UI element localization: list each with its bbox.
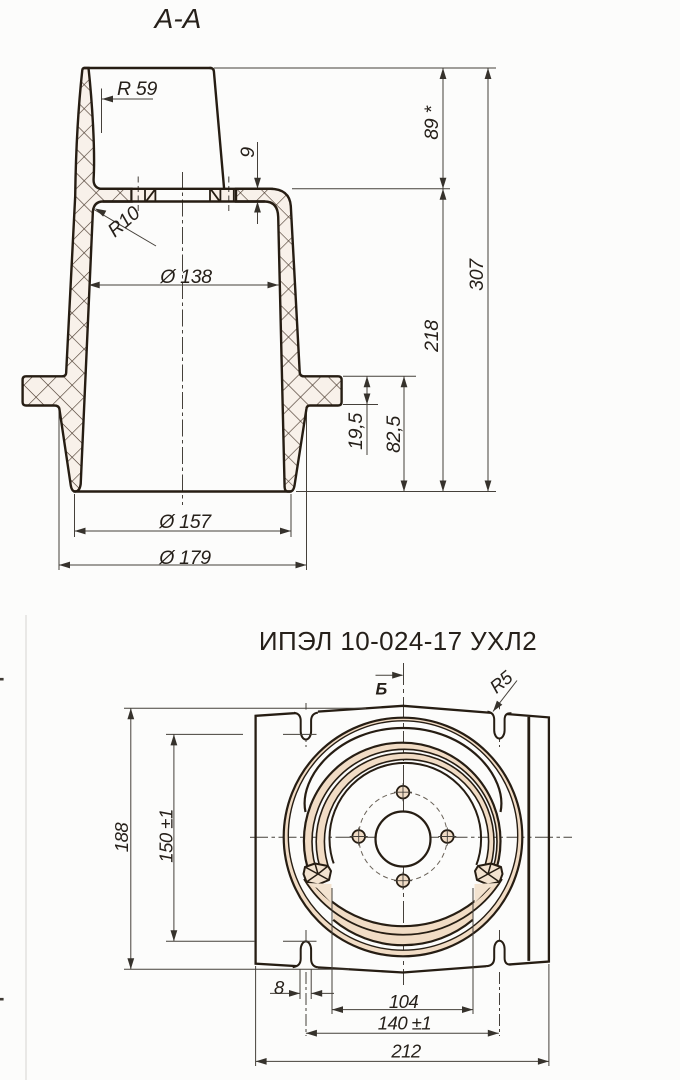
svg-text:212: 212 (390, 1041, 422, 1062)
svg-text:Ø 157: Ø 157 (158, 511, 212, 533)
svg-text:8: 8 (274, 977, 285, 998)
svg-text:R 59: R 59 (117, 78, 157, 100)
svg-text:82,5: 82,5 (383, 416, 405, 453)
svg-text:188: 188 (111, 822, 132, 853)
svg-text:218: 218 (421, 320, 443, 353)
svg-text:A-A: A-A (153, 3, 202, 34)
svg-text:307: 307 (466, 258, 488, 291)
svg-text:Ø 138: Ø 138 (159, 266, 212, 288)
svg-text:104: 104 (389, 991, 419, 1012)
svg-text:ИПЭЛ 10-024-17 УХЛ2: ИПЭЛ 10-024-17 УХЛ2 (259, 626, 537, 656)
svg-text:150 ±1: 150 ±1 (156, 809, 177, 862)
svg-text:Ø 179: Ø 179 (158, 547, 211, 569)
svg-text:9: 9 (237, 147, 259, 158)
svg-text:Б: Б (376, 681, 388, 699)
svg-text:140 ±1: 140 ±1 (378, 1013, 431, 1034)
svg-text:89 *: 89 * (421, 105, 443, 140)
svg-text:19,5: 19,5 (345, 413, 367, 450)
